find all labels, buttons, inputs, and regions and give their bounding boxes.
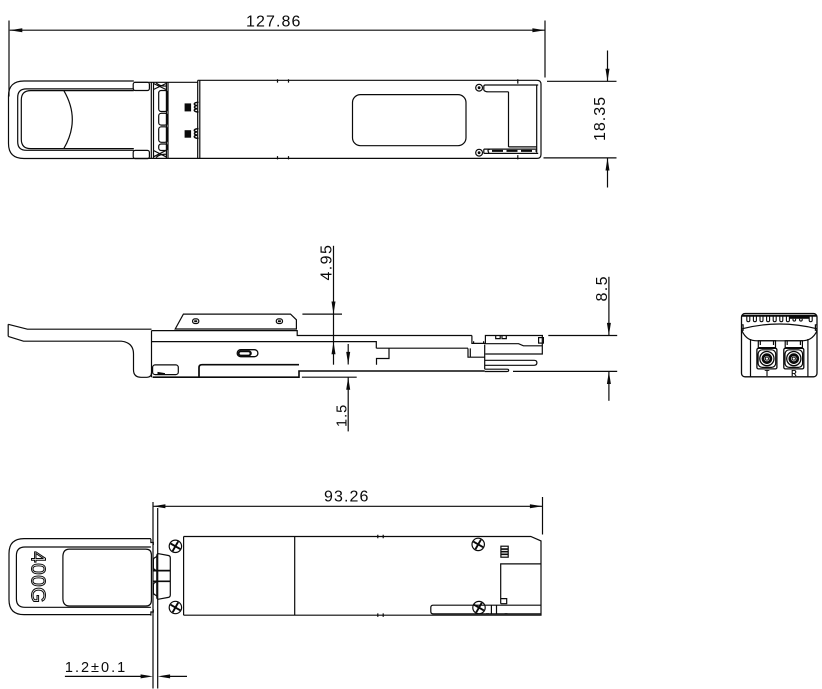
svg-text:1.2±0.1: 1.2±0.1 [65, 660, 127, 676]
svg-text:93.26: 93.26 [324, 489, 370, 506]
svg-text:18.35: 18.35 [592, 96, 609, 141]
svg-text:400G: 400G [27, 551, 50, 603]
svg-text:R: R [791, 369, 797, 378]
svg-text:T: T [765, 369, 770, 378]
svg-text:4.95: 4.95 [319, 244, 336, 281]
svg-text:8.5: 8.5 [594, 275, 611, 301]
svg-text:127.86: 127.86 [246, 13, 302, 30]
svg-text:1.5: 1.5 [335, 404, 351, 427]
